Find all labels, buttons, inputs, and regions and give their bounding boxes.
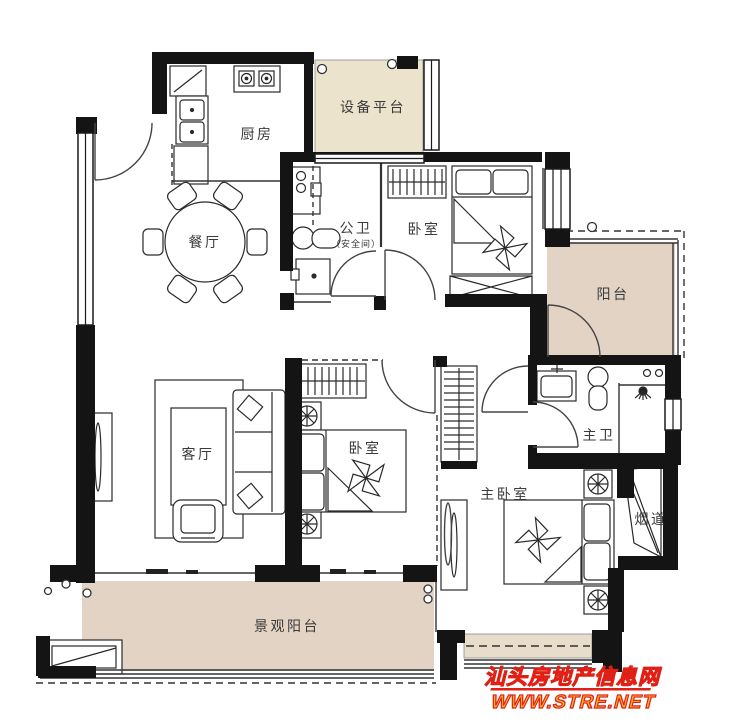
fan-spokes — [588, 590, 608, 610]
vanity-basin — [541, 376, 572, 397]
drain-dot — [191, 131, 194, 134]
sliding-door-panel — [146, 569, 168, 574]
wall-segment — [528, 453, 677, 469]
floor-plan-drawing: 厨房 设备平台 餐厅 公卫 （安全间） 卧室 阳台 客厅 卧室 主卫 主卧室 烟… — [0, 0, 730, 723]
room-label-scenic-balcony: 景观阳台 — [254, 618, 320, 634]
room-label-public-bath: 公卫 — [340, 220, 373, 236]
drain-dot — [191, 109, 194, 112]
floor-plan: 厨房 设备平台 餐厅 公卫 （安全间） 卧室 阳台 客厅 卧室 主卫 主卧室 烟… — [0, 0, 730, 723]
wall-segment — [665, 355, 681, 399]
watermark-line1: 汕头房地产信息网 — [483, 664, 665, 689]
door-swing-arc — [385, 250, 435, 300]
burner-dot — [265, 77, 268, 80]
wall-segment — [445, 294, 541, 307]
wall-segment — [255, 565, 320, 582]
wall-segment — [280, 293, 294, 310]
drain-circle — [388, 60, 397, 69]
wall-segment — [76, 325, 95, 583]
door-swing-arc — [331, 251, 376, 296]
window-left-wall — [78, 133, 93, 325]
wall-segment — [608, 568, 624, 632]
drain-circle — [424, 595, 432, 603]
wall-segment — [397, 56, 418, 69]
room-label-public-bath-note: （安全间） — [331, 238, 381, 249]
tv-screen — [95, 423, 101, 491]
door-swing-arc — [533, 402, 578, 447]
corridor-wardrobe — [441, 366, 477, 462]
bed-pillow — [584, 543, 610, 580]
nightstand-fan — [584, 470, 612, 498]
window-master-bath — [665, 399, 681, 430]
room-label-bedroom-mid: 卧室 — [349, 440, 382, 456]
wall-segment — [280, 152, 293, 271]
room-label-living: 客厅 — [182, 446, 215, 462]
room-label-kitchen: 厨房 — [241, 126, 274, 142]
wall-segment — [545, 229, 570, 247]
master-bath-fixtures — [537, 365, 663, 410]
window-platform-right — [424, 60, 439, 150]
entry-door — [95, 123, 152, 180]
master-bath-door — [533, 402, 578, 447]
kitchen-furniture — [170, 66, 280, 184]
master-bedroom-door — [482, 366, 528, 412]
armchair-seat — [181, 505, 215, 533]
door-swing-arc — [382, 360, 435, 413]
watermark-line2: WWW.STRE.NET — [489, 692, 658, 713]
bed-pillow — [584, 504, 610, 541]
wall-segment — [528, 362, 537, 405]
window-frame — [545, 169, 570, 229]
drain-circle — [424, 585, 432, 593]
door-swing-arc — [482, 366, 528, 412]
wall-segment — [530, 294, 547, 360]
wall-segment — [545, 152, 570, 169]
wall-segment — [528, 355, 678, 365]
wall-segment — [152, 52, 167, 114]
drain-circle — [62, 580, 70, 588]
toilet-tank — [588, 367, 608, 387]
wall-segment — [304, 58, 313, 158]
wall-segment — [285, 358, 302, 568]
bed-pillow — [493, 170, 528, 194]
shower-knob — [644, 370, 651, 377]
sliding-door-panel — [330, 569, 346, 574]
bed-pillow — [456, 170, 491, 194]
dining-chair — [143, 229, 163, 255]
wall-segment — [441, 461, 477, 469]
room-label-equipment-platform: 设备平台 — [340, 99, 406, 115]
watermark: 汕头房地产信息网 WWW.STRE.NET — [482, 664, 664, 713]
window-bedroom-right — [545, 169, 570, 229]
wall-segment — [403, 565, 437, 582]
vanity-drain — [312, 274, 316, 278]
sliding-door-panel — [364, 570, 376, 574]
room-label-master-bedroom: 主卧室 — [480, 486, 530, 502]
nightstand-fan — [584, 586, 612, 614]
watermark-line2-group: WWW.STRE.NET — [489, 692, 658, 713]
drain-circle — [318, 65, 327, 74]
room-label-flue: 烟道 — [635, 511, 668, 527]
public-bath-door — [331, 251, 376, 296]
burner-dot — [245, 77, 248, 80]
drain-circle — [45, 588, 52, 595]
door-swing-arc — [95, 123, 152, 180]
watermark-line1-group: 汕头房地产信息网 — [482, 664, 664, 690]
room-label-master-bath: 主卫 — [583, 427, 616, 443]
drain-circle — [588, 223, 597, 232]
wall-segment — [38, 666, 96, 678]
room-label-dining: 餐厅 — [189, 234, 222, 250]
toilet-bowl — [589, 386, 607, 410]
washer-knob — [297, 184, 306, 193]
bedroom-top-door — [385, 250, 435, 300]
room-label-balcony-right: 阳台 — [597, 286, 630, 302]
wall-segment — [617, 453, 634, 498]
shower-spray — [635, 391, 651, 400]
kitchen-cabinet — [174, 146, 208, 184]
wall-segment — [76, 117, 97, 134]
toilet-tank — [292, 227, 314, 249]
watermark-underline — [490, 688, 651, 691]
wall-segment — [618, 556, 678, 570]
room-label-bedroom-top: 卧室 — [408, 221, 441, 237]
bedroom-mid-door — [382, 360, 435, 413]
wall-segment — [440, 630, 457, 680]
dining-chair — [247, 229, 267, 255]
window-under-platform — [315, 154, 424, 163]
wall-segment — [152, 52, 314, 64]
fan-spokes — [588, 474, 608, 494]
sliding-door-panel — [186, 570, 198, 574]
shower-knob — [656, 370, 663, 377]
drain-circle — [83, 589, 91, 597]
washer-knob — [297, 172, 306, 181]
public-bath-fixtures — [291, 167, 340, 294]
wall-segment — [374, 296, 386, 310]
